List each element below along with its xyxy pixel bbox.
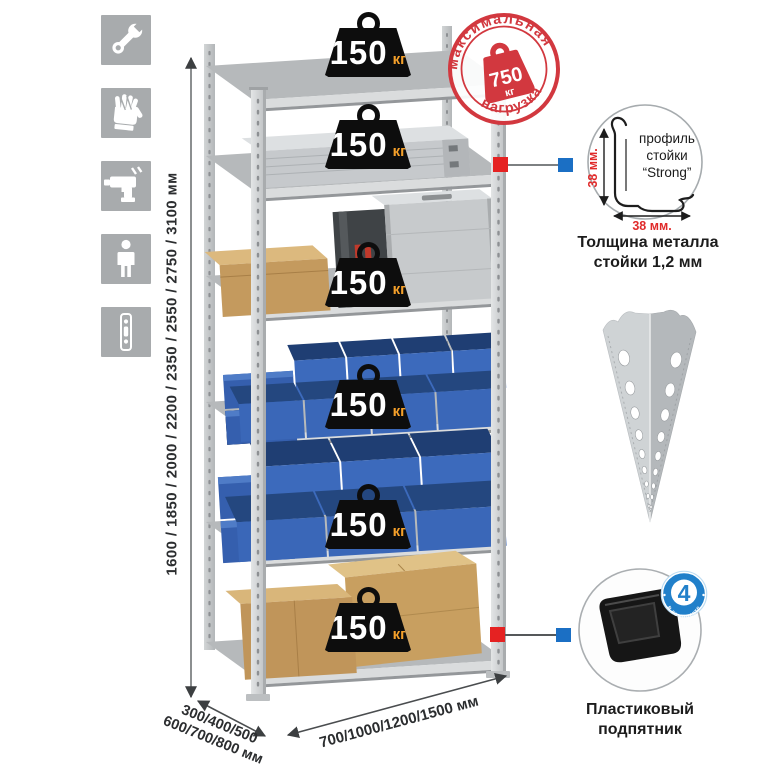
load-badge-shelf5: 150кг xyxy=(325,484,411,549)
load-value: 150 xyxy=(330,36,388,69)
load-badge-shelf1: 150кг xyxy=(325,12,411,77)
load-value: 150 xyxy=(330,128,388,161)
load-value: 150 xyxy=(330,266,388,299)
product-infographic: 150кг 150кг 150кг 150кг 150кг 150кг макс… xyxy=(0,0,765,765)
load-value: 150 xyxy=(330,388,388,421)
foot-callout-connector xyxy=(490,627,571,642)
load-unit: кг xyxy=(393,524,407,539)
load-unit: кг xyxy=(393,627,407,642)
load-badge-shelf3: 150кг xyxy=(325,242,411,307)
profile-label-line1: профиль xyxy=(639,131,695,146)
load-unit: кг xyxy=(393,404,407,419)
quantity-badge-value: 4 xyxy=(678,580,691,606)
profile-callout-connector xyxy=(493,157,573,172)
load-unit: кг xyxy=(393,282,407,297)
load-value: 150 xyxy=(330,611,388,644)
profile-label-line3: “Strong” xyxy=(643,165,692,180)
profile-dim-vertical: 38 мм. xyxy=(586,148,600,187)
profile-detail: 38 мм. 38 мм. профиль стойки “Strong” xyxy=(570,95,725,240)
height-dimension-label: 1600 / 1850 / 2000 / 2200 / 2350 / 2550 … xyxy=(164,172,181,575)
foot-detail: 4 в комплекте xyxy=(572,563,714,708)
load-value: 150 xyxy=(330,508,388,541)
load-unit: кг xyxy=(393,144,407,159)
profile-caption-line1: Толщина металла xyxy=(563,233,733,253)
angle-post-image xyxy=(588,300,708,540)
load-badge-shelf2: 150кг xyxy=(325,104,411,169)
foot-caption-line1: Пластиковый xyxy=(560,700,720,720)
profile-caption: Толщина металла стойки 1,2 мм xyxy=(563,233,733,273)
load-badge-shelf6: 150кг xyxy=(325,587,411,652)
foot-caption-line2: подпятник xyxy=(560,720,720,740)
profile-label-line2: стойки xyxy=(646,148,687,163)
load-unit: кг xyxy=(393,52,407,67)
profile-caption-line2: стойки 1,2 мм xyxy=(563,253,733,273)
foot-caption: Пластиковый подпятник xyxy=(560,700,720,740)
load-badge-shelf4: 150кг xyxy=(325,364,411,429)
profile-dim-horizontal: 38 мм. xyxy=(632,219,671,233)
